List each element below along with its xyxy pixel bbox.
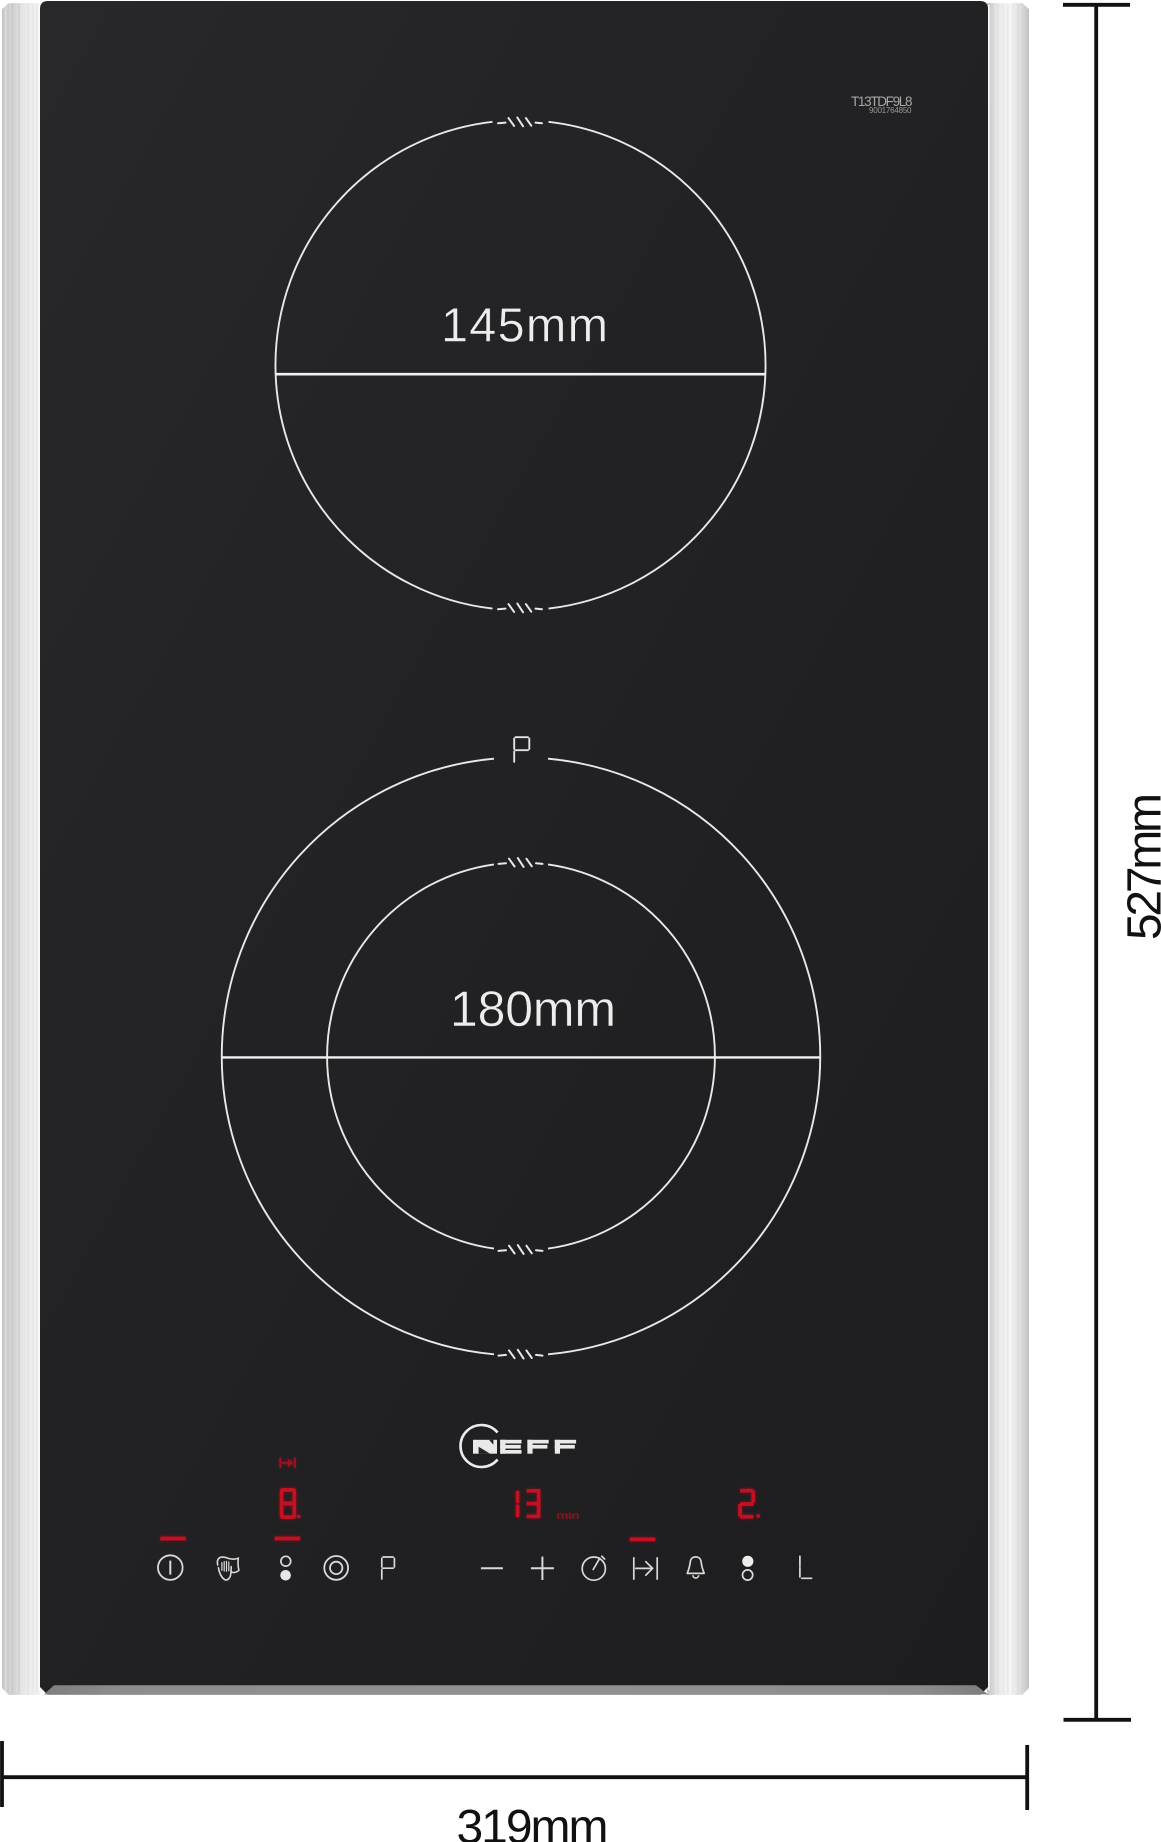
svg-text:180mm: 180mm — [450, 981, 616, 1037]
svg-text:145mm: 145mm — [441, 299, 608, 353]
svg-text:527mm: 527mm — [1119, 793, 1161, 940]
svg-text:9001764850: 9001764850 — [869, 106, 912, 115]
svg-text:319mm: 319mm — [457, 1801, 609, 1842]
